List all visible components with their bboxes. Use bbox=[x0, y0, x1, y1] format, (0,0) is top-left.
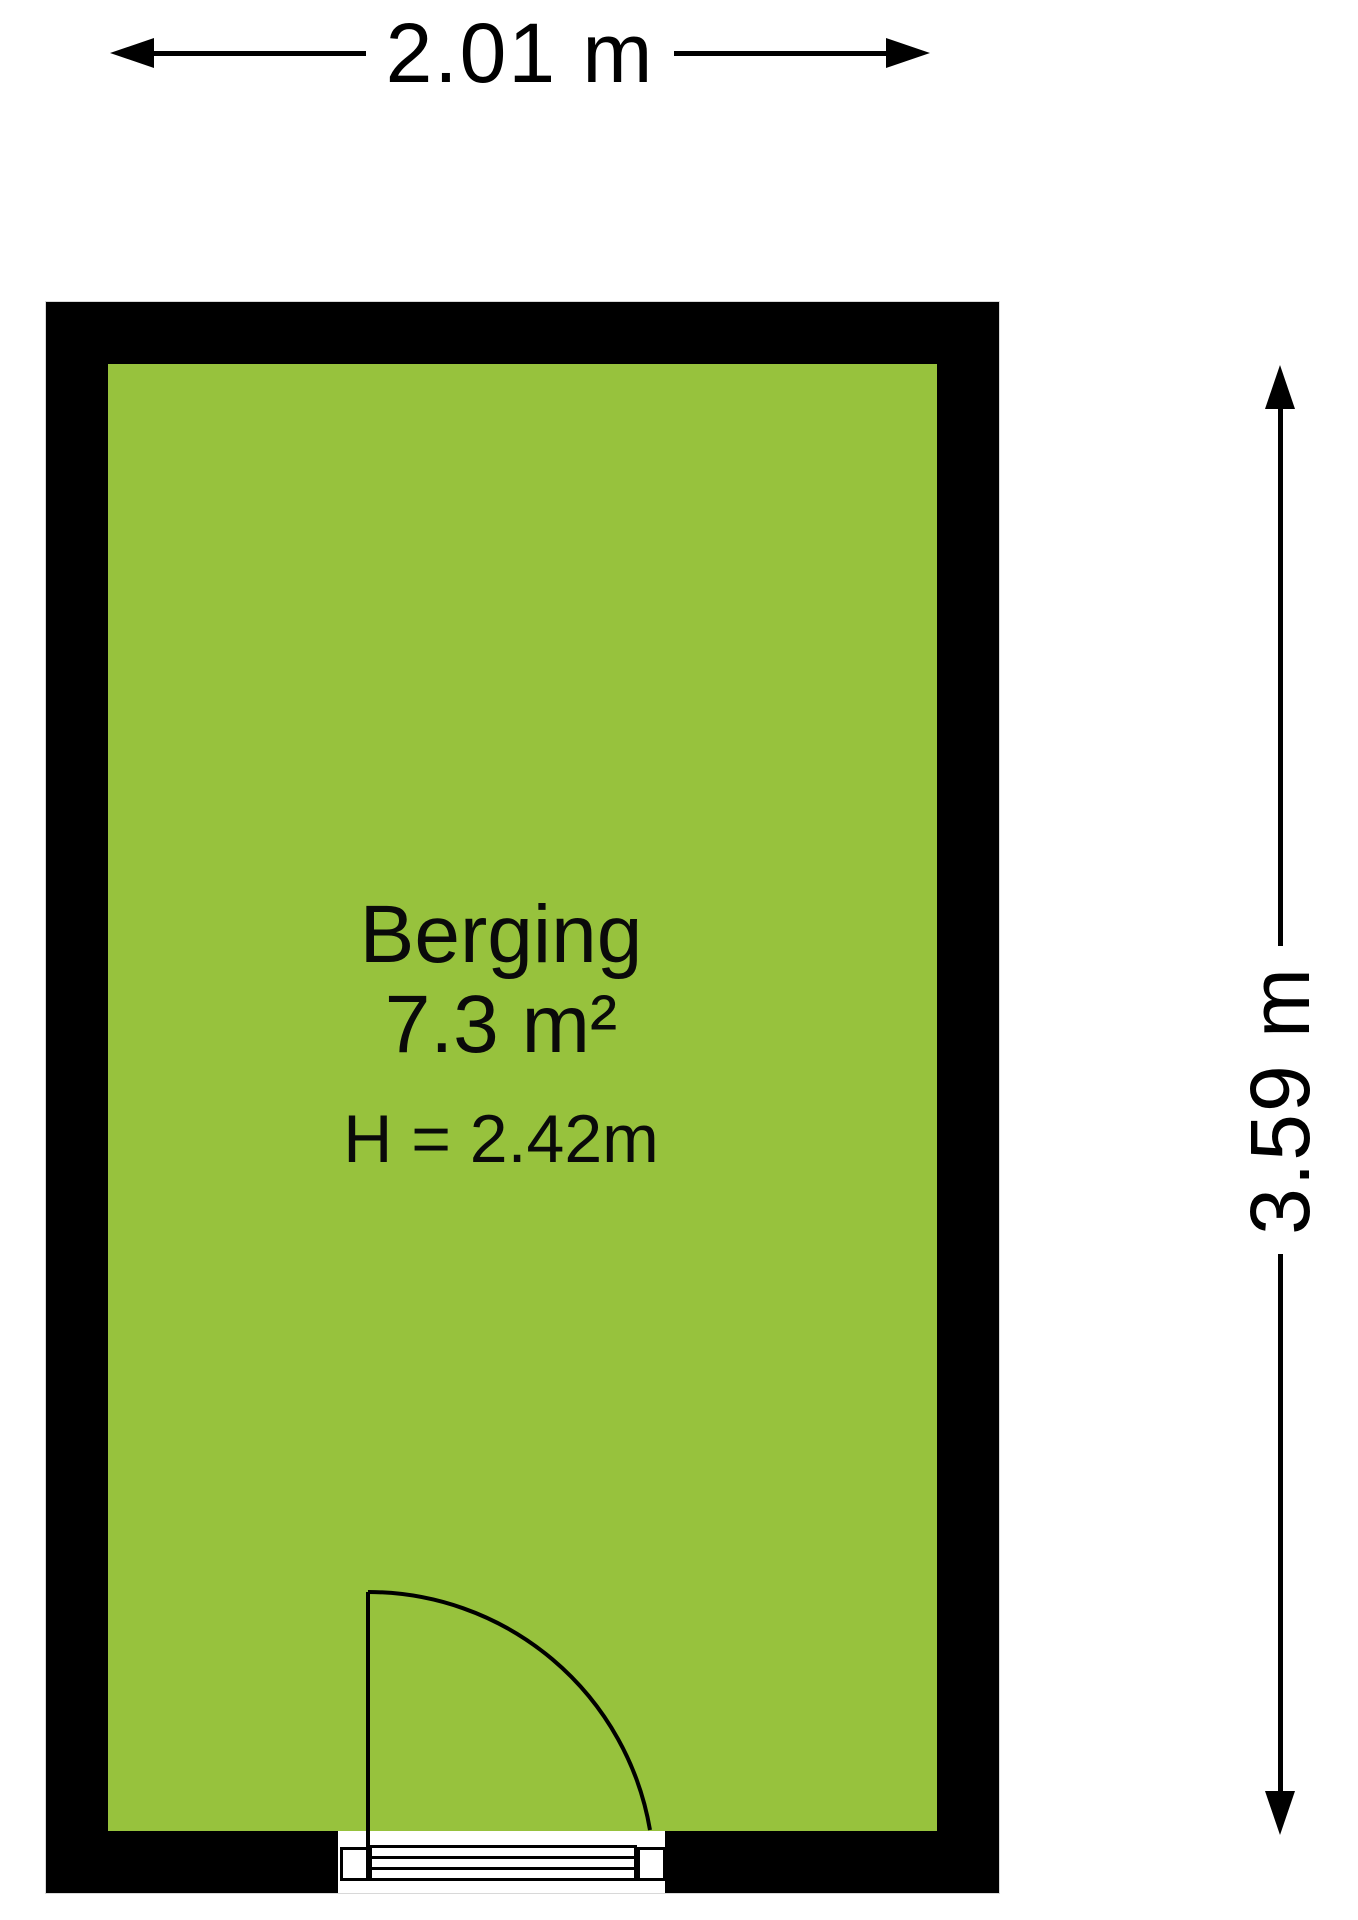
dimension-line bbox=[1278, 1254, 1283, 1791]
dimension-line bbox=[1278, 409, 1283, 946]
dimension-line bbox=[674, 51, 886, 56]
door-jamb-left bbox=[340, 1847, 369, 1881]
room-label: Berging 7.3 m² H = 2.42m bbox=[87, 890, 915, 1178]
threshold-stripe bbox=[372, 1856, 634, 1859]
width-dimension-label: 2.01 m bbox=[366, 11, 675, 95]
arrow-right-icon bbox=[886, 38, 930, 68]
arrow-down-icon bbox=[1265, 1791, 1295, 1835]
floor-plan-canvas: 2.01 m 3.59 m Berging 7.3 m² H = 2.42m bbox=[0, 0, 1358, 1920]
door-threshold bbox=[369, 1845, 637, 1881]
width-dimension: 2.01 m bbox=[110, 21, 930, 85]
door-jamb-right bbox=[637, 1847, 666, 1881]
dimension-line bbox=[154, 51, 366, 56]
arrow-left-icon bbox=[110, 38, 154, 68]
height-dimension-label: 3.59 m bbox=[1238, 946, 1322, 1255]
threshold-stripe bbox=[372, 1867, 634, 1870]
room-area-label: 7.3 m² bbox=[87, 980, 915, 1070]
arrow-up-icon bbox=[1265, 365, 1295, 409]
height-dimension: 3.59 m bbox=[1235, 365, 1325, 1835]
room-ceiling-height-label: H = 2.42m bbox=[87, 1100, 915, 1178]
room-name-label: Berging bbox=[87, 890, 915, 980]
